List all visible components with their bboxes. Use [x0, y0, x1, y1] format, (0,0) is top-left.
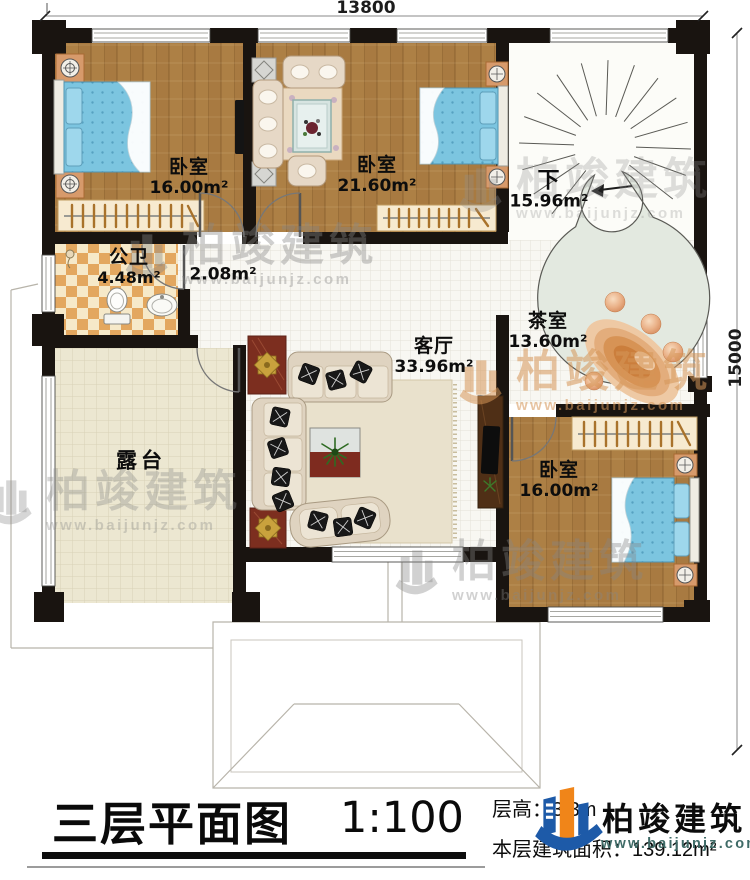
title-underline-thick: [42, 852, 466, 859]
room-area: 16.00m²: [150, 179, 229, 198]
coffee-table: [293, 100, 331, 152]
room-label-bedroom-top: 卧室 21.60m²: [338, 156, 417, 196]
sink: [147, 294, 177, 316]
stool: [663, 342, 683, 362]
room-name: 公卫: [97, 248, 160, 269]
room-label-terrace: 露台: [116, 449, 166, 472]
tv-console: [250, 508, 286, 548]
room-label-bedroom-tl: 卧室 16.00m²: [150, 158, 229, 198]
room-area: 15.96m²: [510, 193, 589, 212]
room-area: 21.60m²: [338, 177, 417, 196]
coffee-table: [310, 428, 360, 477]
pillow: [674, 484, 689, 518]
room-label-bathroom: 公卫 4.48m²: [97, 248, 160, 286]
room-label-bedroom-br: 卧室 16.00m²: [520, 461, 599, 501]
closet: [58, 200, 204, 231]
double-bed: [420, 86, 508, 166]
pillow: [66, 88, 82, 124]
wall-tv: [235, 100, 244, 154]
room-name: 茶室: [509, 312, 588, 333]
title-underline-thin: [27, 866, 485, 868]
floorplan-page: 柏竣建筑 www.baijunjz.com 柏竣建筑 www.baijunjz.…: [0, 0, 750, 880]
room-name: 客厅: [395, 337, 474, 358]
tv-console: [248, 336, 286, 394]
room-area: 16.00m²: [520, 482, 599, 501]
tv: [481, 426, 500, 475]
room-label-stairwell: 下 15.96m²: [510, 169, 589, 212]
room-name: 下: [510, 169, 589, 193]
column: [34, 592, 64, 622]
dimension-top: 13800: [326, 0, 406, 18]
brand-site: www.baijunjz.com: [601, 836, 750, 852]
terrace-floor: [55, 348, 233, 603]
room-name: 露台: [116, 449, 166, 472]
room-area: 4.48m²: [97, 269, 160, 287]
pillow: [480, 92, 496, 124]
room-name: 卧室: [150, 158, 229, 179]
stool: [641, 314, 661, 334]
closet: [572, 417, 697, 450]
pillow: [480, 128, 496, 160]
closet: [377, 205, 496, 231]
dimension-right: 15000: [726, 322, 746, 394]
hallway-floor: [178, 244, 509, 348]
double-bed: [54, 80, 150, 174]
plan-title: 三层平面图: [52, 788, 292, 854]
room-label-hallway: 2.08m²: [189, 266, 256, 285]
plan-scale: 1:100: [340, 793, 464, 843]
room-label-tearoom: 茶室 13.60m²: [509, 312, 588, 352]
floorplan-drawing: [0, 0, 750, 880]
room-area: 33.96m²: [395, 358, 474, 377]
brand-logo-icon: [533, 785, 605, 867]
room-area: 13.60m²: [509, 333, 588, 352]
pillow: [66, 128, 82, 166]
stool: [605, 292, 625, 312]
room-name: 卧室: [520, 461, 599, 482]
pillow: [674, 522, 689, 556]
room-area: 2.08m²: [189, 266, 256, 285]
stool: [585, 372, 603, 390]
room-name: 卧室: [338, 156, 417, 177]
brand-name: 柏竣建筑: [602, 794, 746, 840]
room-label-living: 客厅 33.96m²: [395, 337, 474, 377]
tv-stand: [478, 396, 503, 508]
